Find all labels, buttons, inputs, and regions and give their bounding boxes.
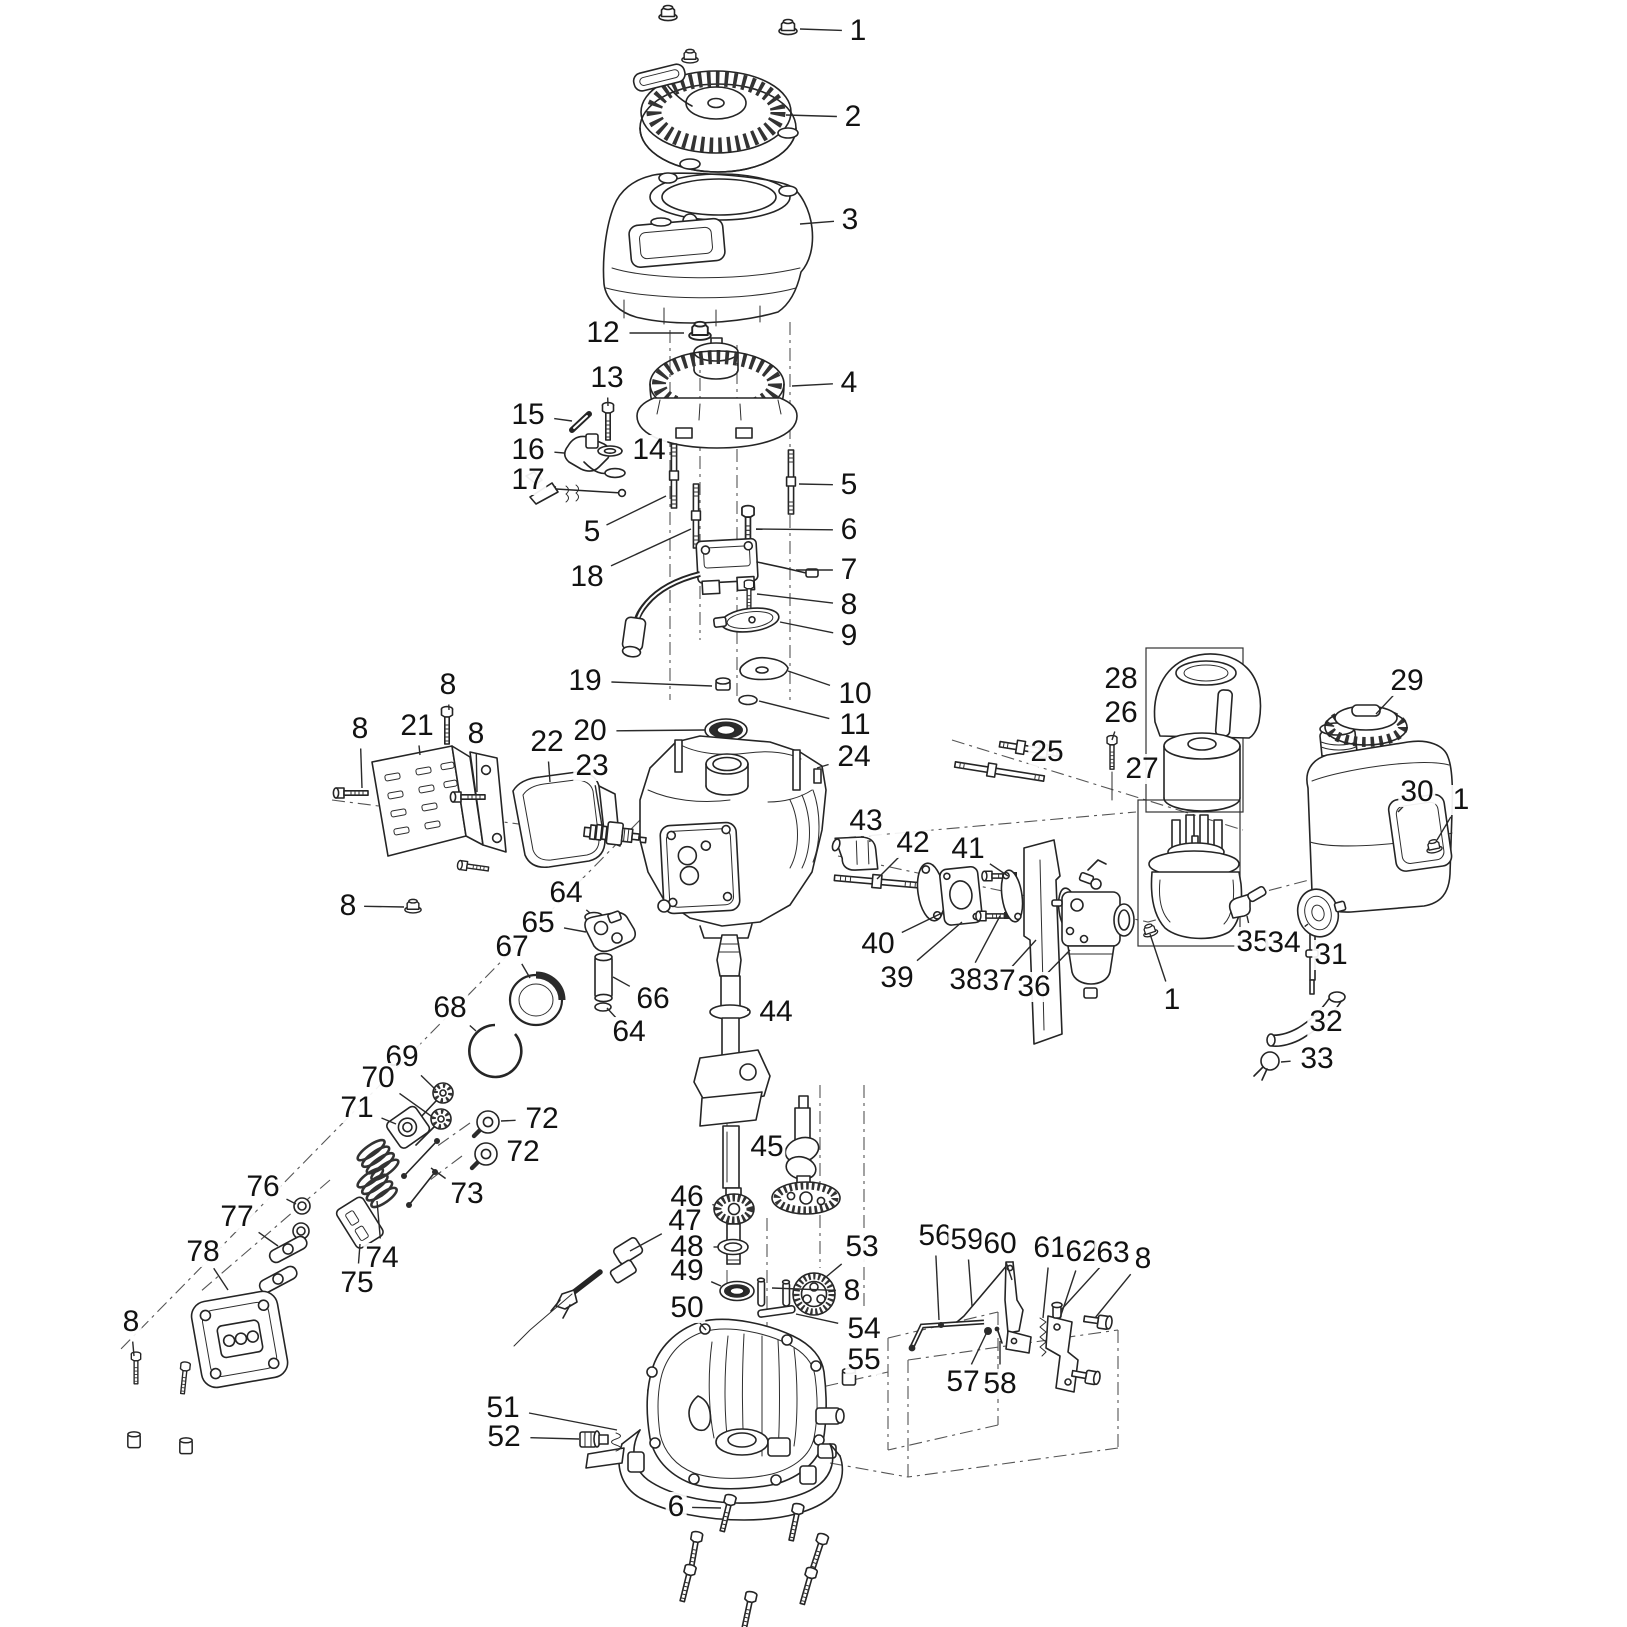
exhaust-guard xyxy=(513,772,620,867)
callout-77: 77 xyxy=(218,1202,255,1232)
leader-line-39 xyxy=(917,922,962,961)
air-filter-base xyxy=(1141,815,1241,938)
leader-line-63 xyxy=(1061,1267,1100,1310)
callout-30: 30 xyxy=(1398,777,1435,807)
callout-59: 59 xyxy=(948,1225,985,1255)
leader-line-65 xyxy=(564,928,586,932)
flywheel-nut xyxy=(689,322,711,340)
callout-8: 8 xyxy=(350,714,371,744)
callout-63: 63 xyxy=(1094,1238,1131,1268)
callout-27: 27 xyxy=(1123,754,1160,784)
leader-line-5 xyxy=(607,496,667,525)
callout-32: 32 xyxy=(1307,1007,1344,1037)
leader-line-19 xyxy=(611,682,712,686)
callout-8: 8 xyxy=(1133,1244,1154,1274)
leader-line-8 xyxy=(757,594,833,603)
callout-75: 75 xyxy=(338,1268,375,1298)
callout-1: 1 xyxy=(848,16,869,46)
leader-line-64 xyxy=(586,910,590,913)
breather-valve xyxy=(716,678,730,690)
leader-line-59 xyxy=(969,1260,973,1307)
callout-60: 60 xyxy=(981,1229,1018,1259)
callout-8: 8 xyxy=(842,1276,863,1306)
callout-5: 5 xyxy=(839,470,860,500)
recoil-starter xyxy=(632,63,798,172)
callout-57: 57 xyxy=(944,1367,981,1397)
leader-line-5 xyxy=(799,484,833,485)
callout-58: 58 xyxy=(981,1369,1018,1399)
callout-1: 1 xyxy=(1451,785,1472,815)
callout-6: 6 xyxy=(839,515,860,545)
callout-6: 6 xyxy=(666,1492,687,1522)
air-filter-bolt xyxy=(1107,736,1117,800)
callout-13: 13 xyxy=(588,363,625,393)
callout-23: 23 xyxy=(573,751,610,781)
flywheel xyxy=(637,338,797,448)
callout-34: 34 xyxy=(1265,928,1302,958)
cylinder-studs xyxy=(670,444,796,548)
leader-line-8 xyxy=(361,749,362,789)
leader-line-61 xyxy=(1043,1268,1048,1319)
leader-line-1 xyxy=(800,29,842,30)
callout-16: 16 xyxy=(509,435,546,465)
callout-49: 49 xyxy=(668,1256,705,1286)
callout-44: 44 xyxy=(757,997,794,1027)
callout-64: 64 xyxy=(610,1017,647,1047)
callout-72: 72 xyxy=(504,1137,541,1167)
fuel-tank xyxy=(1307,705,1453,912)
callout-43: 43 xyxy=(847,806,884,836)
leader-line-1 xyxy=(1150,934,1166,982)
callout-15: 15 xyxy=(509,400,546,430)
callout-37: 37 xyxy=(980,966,1017,996)
callout-52: 52 xyxy=(485,1422,522,1452)
callout-14: 14 xyxy=(630,435,667,465)
muffler xyxy=(372,746,506,856)
leader-line-78 xyxy=(214,1268,228,1290)
callout-66: 66 xyxy=(634,984,671,1014)
oil-seal-lower xyxy=(720,1282,754,1301)
leader-line-51 xyxy=(529,1413,617,1430)
carburetor xyxy=(1052,860,1134,998)
callout-2: 2 xyxy=(843,102,864,132)
leader-line-16 xyxy=(554,452,564,453)
callout-41: 41 xyxy=(949,834,986,864)
callout-8: 8 xyxy=(121,1307,142,1337)
valve-cover xyxy=(189,1289,290,1390)
callout-28: 28 xyxy=(1102,664,1139,694)
callout-71: 71 xyxy=(338,1093,375,1123)
callout-1: 1 xyxy=(1162,985,1183,1015)
callout-72: 72 xyxy=(523,1104,560,1134)
callout-38: 38 xyxy=(947,965,984,995)
callout-8: 8 xyxy=(338,891,359,921)
callout-78: 78 xyxy=(184,1237,221,1267)
oil-sensor xyxy=(514,1236,651,1346)
leader-line-56 xyxy=(936,1256,939,1321)
leader-line-72 xyxy=(501,1120,516,1121)
air-vane-plate xyxy=(713,605,780,636)
ring-68 xyxy=(469,1025,521,1077)
leader-line-33 xyxy=(1281,1061,1291,1062)
crankcase-cover xyxy=(586,1319,844,1520)
leader-line-40 xyxy=(902,912,944,933)
callout-9: 9 xyxy=(839,621,860,651)
sump-bolts xyxy=(677,1494,829,1627)
engine-exploded-drawing xyxy=(0,0,1627,1627)
callout-22: 22 xyxy=(528,727,565,757)
callout-24: 24 xyxy=(835,742,872,772)
leader-line-9 xyxy=(780,622,833,633)
cover-bolts xyxy=(128,1352,192,1454)
leader-line-46 xyxy=(712,1205,714,1206)
callout-53: 53 xyxy=(843,1232,880,1262)
leader-line-15 xyxy=(554,419,572,421)
callout-10: 10 xyxy=(836,679,873,709)
leader-line-4 xyxy=(792,384,833,386)
seal-washer xyxy=(739,696,757,705)
callout-7: 7 xyxy=(839,555,860,585)
leader-line-11 xyxy=(759,701,829,719)
leader-line-62 xyxy=(1060,1271,1076,1319)
heat-shield xyxy=(1024,840,1062,1044)
callout-4: 4 xyxy=(839,368,860,398)
leader-line-53 xyxy=(826,1264,842,1277)
leader-line-49 xyxy=(711,1282,721,1286)
leader-line-8 xyxy=(476,754,477,793)
callout-8: 8 xyxy=(466,719,487,749)
thrust-washer xyxy=(718,1240,748,1255)
callout-50: 50 xyxy=(668,1293,705,1323)
callout-31: 31 xyxy=(1312,940,1349,970)
leader-line-10 xyxy=(788,671,830,685)
callout-68: 68 xyxy=(431,993,468,1023)
callout-19: 19 xyxy=(566,666,603,696)
callout-67: 67 xyxy=(493,932,530,962)
leader-line-21 xyxy=(419,745,420,755)
leader-line-17 xyxy=(554,486,556,487)
callout-20: 20 xyxy=(571,716,608,746)
callout-76: 76 xyxy=(244,1172,281,1202)
callout-36: 36 xyxy=(1015,972,1052,1002)
long-stud xyxy=(834,871,923,892)
leader-line-6 xyxy=(692,1507,721,1508)
callout-51: 51 xyxy=(484,1393,521,1423)
callout-12: 12 xyxy=(584,318,621,348)
crankshaft xyxy=(694,935,770,1264)
callout-18: 18 xyxy=(568,562,605,592)
callout-11: 11 xyxy=(837,710,872,740)
callout-29: 29 xyxy=(1388,666,1425,696)
callout-55: 55 xyxy=(845,1345,882,1375)
callout-73: 73 xyxy=(448,1179,485,1209)
leader-line-38 xyxy=(975,916,1000,963)
blower-housing xyxy=(603,173,812,326)
starter-mount-nuts xyxy=(659,6,797,63)
leader-line-18 xyxy=(611,529,691,566)
callout-8: 8 xyxy=(839,590,860,620)
leader-line-8 xyxy=(1095,1274,1131,1318)
callout-70: 70 xyxy=(359,1063,396,1093)
leader-line-69 xyxy=(421,1075,436,1090)
leader-line-35 xyxy=(1247,916,1249,923)
callout-33: 33 xyxy=(1298,1044,1335,1074)
leader-line-52 xyxy=(530,1438,579,1439)
callout-17: 17 xyxy=(509,465,546,495)
callout-8: 8 xyxy=(438,670,459,700)
callout-42: 42 xyxy=(894,828,931,858)
timing-gear xyxy=(714,1194,754,1224)
callout-64: 64 xyxy=(547,878,584,908)
leader-line-66 xyxy=(613,977,630,986)
drain-plug xyxy=(580,1431,621,1451)
callout-40: 40 xyxy=(859,929,896,959)
callout-54: 54 xyxy=(845,1314,882,1344)
leader-line-57 xyxy=(971,1334,986,1364)
callout-5: 5 xyxy=(582,517,603,547)
callout-21: 21 xyxy=(398,711,435,741)
leader-line-6 xyxy=(756,529,833,530)
callout-3: 3 xyxy=(840,205,861,235)
leader-line-8 xyxy=(364,906,404,907)
callout-45: 45 xyxy=(748,1132,785,1162)
callout-26: 26 xyxy=(1102,698,1139,728)
callout-39: 39 xyxy=(878,963,915,993)
leader-line-20 xyxy=(616,730,705,731)
callout-25: 25 xyxy=(1028,737,1065,767)
leader-line-68 xyxy=(470,1026,476,1032)
ring-67 xyxy=(510,975,562,1025)
cylinder-block xyxy=(640,736,826,938)
gasket-small xyxy=(740,658,788,680)
parts-diagram-canvas: 1231213415161417565718891910112024821882… xyxy=(0,0,1627,1627)
